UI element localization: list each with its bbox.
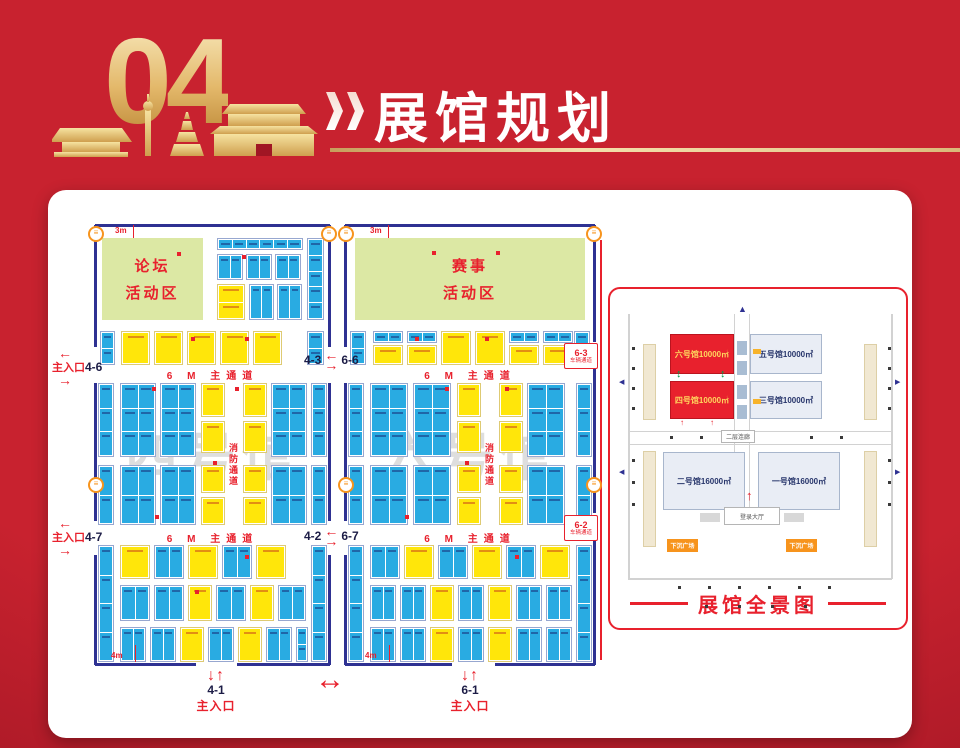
booth-cell (389, 333, 402, 341)
booth (413, 465, 451, 525)
booth-cell (100, 576, 112, 604)
arrow-left-icon: ← (58, 518, 72, 529)
booth-cell (203, 467, 223, 491)
booth-cell (219, 286, 243, 302)
red-dot (155, 515, 159, 519)
chevron-icon (326, 92, 343, 130)
junction-label: 4-3←→6-6 (304, 350, 359, 370)
booth (98, 465, 114, 525)
fire-lane-label: 消防通道 (228, 415, 240, 515)
booth-cell (415, 385, 432, 408)
booth-cell (123, 333, 148, 363)
plan-border (593, 541, 596, 665)
red-dot (213, 461, 217, 465)
aisle-label: 6 M 主通道 (95, 367, 330, 379)
gate-label: 车辆通道 (570, 358, 592, 365)
booth-cell (350, 547, 362, 575)
booth (238, 627, 262, 662)
map-dot (632, 503, 635, 506)
booth (180, 627, 204, 662)
corridor-chip (784, 513, 804, 522)
booth-cell (390, 432, 407, 455)
booth-cell (262, 286, 272, 318)
booth-cell (415, 409, 432, 432)
booth-cell (288, 240, 301, 248)
booth-cell (309, 333, 322, 348)
map-arrow-icon: ◀ (726, 393, 732, 401)
xian-skyline-icon (52, 88, 320, 160)
booth (249, 284, 274, 320)
booth-cell (273, 385, 289, 408)
booth-cell (402, 587, 413, 619)
plan-border (593, 225, 596, 342)
dim-tick (388, 225, 389, 238)
booth-cell (578, 604, 590, 632)
booth (509, 331, 539, 343)
booth (154, 545, 184, 579)
booth-cell (490, 587, 510, 619)
booth-cell (170, 587, 183, 619)
booth (499, 497, 523, 525)
page-title: 展馆规划 (374, 74, 618, 153)
door-marker: ≡ (321, 226, 337, 242)
plan-border (344, 225, 347, 347)
booth-cell (313, 547, 325, 575)
booth-cell (511, 333, 524, 341)
booth-cell (372, 385, 389, 408)
booth-cell (139, 409, 155, 432)
booth-cell (414, 587, 425, 619)
booth (458, 585, 484, 621)
booth-cell (162, 385, 178, 408)
map-dot (828, 586, 831, 589)
booth (120, 545, 150, 579)
booth (243, 421, 267, 453)
booth-cell (122, 385, 138, 408)
plan-panel: 展馆全景图 六号馆10000㎡五号馆10000㎡四号馆10000㎡三号馆1000… (48, 190, 912, 738)
booth-cell (313, 385, 325, 408)
plan-border (328, 225, 331, 347)
map-dot (700, 436, 703, 439)
map-arrow-icon: ▶ (895, 379, 900, 386)
booth-cell (415, 496, 432, 524)
booth (472, 545, 502, 579)
booth-cell (459, 423, 479, 451)
booth-cell (459, 467, 479, 491)
activity-area: 赛事活动区 (355, 238, 585, 320)
booth (201, 421, 225, 453)
vehicle-gate-badge: 6-3车辆通道 (564, 343, 598, 369)
road (628, 444, 892, 445)
booth (576, 383, 592, 457)
booth (488, 627, 512, 662)
aisle-label: 6 M 主通道 (345, 367, 595, 379)
plan-border (95, 224, 330, 227)
door-marker: ≡ (88, 226, 104, 242)
red-boundary-line (600, 240, 602, 660)
plan-border (344, 383, 347, 521)
booth (188, 545, 218, 579)
map-dot (705, 605, 708, 608)
booth-cell (390, 385, 407, 408)
booth-cell (162, 432, 178, 455)
booth-cell (293, 587, 305, 619)
booth (217, 254, 243, 280)
booth (499, 383, 523, 417)
booth (540, 545, 570, 579)
booth-cell (122, 629, 133, 660)
arrow-right-icon: → (58, 375, 72, 386)
booth-cell (122, 467, 138, 495)
booth (216, 585, 246, 621)
arrow-right-icon: → (324, 536, 338, 546)
booth-cell (290, 432, 306, 455)
panorama-caption-row: 展馆全景图 (610, 589, 906, 618)
booth-cell (248, 256, 259, 278)
booth-cell (350, 576, 362, 604)
red-dot (505, 387, 509, 391)
booth (430, 585, 454, 621)
booth-cell (162, 496, 178, 524)
road (628, 578, 892, 580)
booth-cell (529, 432, 546, 455)
booth (160, 465, 196, 525)
booth-cell (529, 409, 546, 432)
booth-cell (372, 467, 389, 495)
corridor-chip (737, 405, 747, 419)
map-dot (632, 407, 635, 410)
booth-cell (454, 547, 467, 577)
side-entrance: ←主入口4-6→ (52, 348, 102, 386)
dim-tick (133, 225, 134, 238)
booth (208, 627, 234, 662)
booth-cell (313, 496, 325, 524)
map-dot (708, 586, 711, 589)
arrow-left-icon: ← (58, 348, 72, 359)
booth-cell (313, 432, 325, 455)
hall-block: 四号馆10000㎡ (670, 381, 734, 419)
booth (275, 254, 301, 280)
booth (457, 465, 481, 493)
booth-cell (529, 385, 546, 408)
junction-right: 6-6 (341, 353, 358, 367)
chevrons-icon (326, 92, 364, 130)
door-marker: ≡ (586, 226, 602, 242)
arrows-up-down-icon: ↓↑ (207, 668, 225, 683)
booth-cell (477, 333, 503, 363)
booth-cell (182, 629, 202, 660)
booth-cell (218, 587, 231, 619)
side-entrance: ←主入口4-7→ (52, 518, 102, 556)
booth-cell (251, 286, 261, 318)
booth-cell (372, 547, 385, 577)
aisle-label: 6 M 主通道 (95, 530, 330, 542)
map-label-box: 登录大厅 (724, 507, 780, 525)
hall-block: 五号馆10000㎡ (750, 334, 822, 374)
caption-line (630, 602, 688, 605)
booth-cell (268, 629, 279, 660)
booth (217, 284, 245, 320)
double-arrow-icon: ↔ (315, 670, 345, 690)
booth (400, 627, 426, 662)
plan-border (94, 225, 97, 347)
booth-cell (525, 333, 538, 341)
booth-cell (501, 423, 521, 451)
booth-cell (530, 587, 541, 619)
door-marker: ≡ (586, 477, 602, 493)
booth-cell (460, 587, 471, 619)
parking-strip (643, 451, 656, 547)
booth-cell (390, 496, 407, 524)
booth-cell (156, 587, 169, 619)
booth-cell (529, 467, 546, 495)
booth-cell (459, 499, 479, 523)
junction-right: 6-7 (341, 529, 358, 543)
booth (120, 627, 146, 662)
booth-cell (433, 432, 450, 455)
map-dot (678, 586, 681, 589)
booth (201, 383, 225, 417)
booth-cell (100, 432, 112, 455)
booth-cell (415, 467, 432, 495)
booth-cell (232, 587, 245, 619)
panorama-caption: 展馆全景图 (698, 589, 818, 618)
booth-cell (501, 467, 521, 491)
booth (271, 465, 307, 525)
booth-cell (252, 587, 272, 619)
map-dot (840, 436, 843, 439)
corridor-chip (737, 385, 747, 399)
map-dot (888, 407, 891, 410)
booth-cell (222, 629, 233, 660)
booth-cell (402, 629, 413, 660)
corridor-chip (737, 341, 747, 355)
booth-cell (162, 467, 178, 495)
map-label-box: 二层连廊 (721, 430, 755, 443)
booth-cell (472, 629, 483, 660)
booth (509, 345, 539, 365)
booth (457, 497, 481, 525)
red-dot (465, 461, 469, 465)
booth-cell (203, 499, 223, 523)
booth-cell (578, 432, 590, 455)
booth-cell (279, 286, 289, 318)
booth (160, 383, 196, 457)
booth-cell (390, 467, 407, 495)
booth-cell (139, 496, 155, 524)
activity-area: 论坛活动区 (102, 238, 203, 320)
booth-cell (560, 587, 571, 619)
bottom-entrance: ↓↑6-1主入口 (448, 668, 492, 714)
booth-cell (224, 547, 237, 577)
booth (499, 421, 523, 453)
arrow-right-icon: → (324, 360, 338, 370)
booth-cell (545, 333, 558, 341)
booth (271, 383, 307, 457)
booth (311, 465, 327, 525)
booth-cell (474, 547, 500, 577)
booth-cell (289, 256, 300, 278)
booth (222, 545, 252, 579)
booth-cell (384, 587, 395, 619)
chevron-icon (347, 92, 364, 130)
map-dot (632, 347, 635, 350)
map-dot (798, 586, 801, 589)
arrow-icon: ↑ (470, 667, 479, 684)
plan-border (95, 663, 196, 666)
booth-cell (432, 587, 452, 619)
plan-border (345, 663, 452, 666)
map-dot (810, 436, 813, 439)
booth-cell (460, 629, 471, 660)
booth (407, 345, 437, 365)
booth (120, 465, 156, 525)
booth-cell (547, 409, 564, 432)
booth-cell (518, 629, 529, 660)
booth-cell (309, 256, 322, 271)
road (628, 431, 892, 432)
dim-label: 4m (111, 651, 123, 660)
booth-cell (136, 587, 149, 619)
aisle-label: 6 M 主通道 (345, 530, 595, 542)
booth (430, 627, 454, 662)
booth-cell (273, 432, 289, 455)
map-dot (738, 605, 741, 608)
booth (348, 383, 364, 457)
booth-cell (350, 432, 362, 455)
booth-cell (309, 303, 322, 318)
booth-cell (309, 287, 322, 302)
booth-cell (162, 409, 178, 432)
booth-cell (522, 547, 535, 577)
booth-cell (255, 333, 280, 363)
plan-border (94, 555, 97, 665)
booth-cell (578, 409, 590, 432)
booth-cell (290, 467, 306, 495)
booth-cell (578, 385, 590, 408)
hall-block: 一号馆16000㎡ (758, 452, 840, 510)
entrance-label: 主入口 (196, 697, 235, 714)
booth (404, 545, 434, 579)
booth-cell (372, 587, 383, 619)
booth-cell (372, 409, 389, 432)
booth (250, 585, 274, 621)
sunken-plaza: 下沉广场 (786, 539, 817, 552)
booth-cell (210, 629, 221, 660)
booth-cell (238, 547, 251, 577)
booth (266, 627, 292, 662)
booth-cell (245, 423, 265, 451)
booth (246, 254, 272, 280)
booth-cell (548, 629, 559, 660)
map-dot (888, 459, 891, 462)
booth-cell (409, 347, 435, 363)
booth-cell (273, 467, 289, 495)
booth-cell (350, 496, 362, 524)
booth (256, 545, 286, 579)
booth-cell (350, 409, 362, 432)
booth (370, 585, 396, 621)
booth-cell (139, 467, 155, 495)
caption-line (828, 602, 886, 605)
bottom-entrance: ↓↑4-1主入口 (194, 668, 238, 714)
booth-cell (309, 240, 322, 255)
map-dot (888, 481, 891, 484)
booth-cell (560, 629, 571, 660)
booth-cell (245, 499, 265, 523)
booth (278, 585, 306, 621)
booth (576, 545, 592, 662)
red-dot (177, 252, 181, 256)
booth-cell (280, 629, 291, 660)
booth-cell (277, 256, 288, 278)
booth (296, 627, 308, 662)
booth-cell (203, 423, 223, 451)
booth-cell (472, 587, 483, 619)
map-arrow-icon: ◀ (619, 469, 624, 476)
entrance-label: 主入口 (450, 697, 489, 714)
booth-cell (179, 432, 195, 455)
booth (150, 627, 176, 662)
booth-cell (290, 496, 306, 524)
booth-cell (548, 587, 559, 619)
arrows-up-down-icon: ↓↑ (461, 668, 479, 683)
corridor-chip (753, 399, 761, 404)
booth (243, 383, 267, 417)
booth (438, 545, 468, 579)
booth-cell (406, 547, 432, 577)
booth-cell (260, 256, 271, 278)
booth (121, 331, 150, 365)
booth (546, 585, 572, 621)
booth-cell (559, 333, 572, 341)
activity-label: 论坛 (134, 255, 170, 276)
booth-cell (547, 385, 564, 408)
red-dot (235, 387, 239, 391)
map-dot (738, 586, 741, 589)
booth-cell (100, 409, 112, 432)
floor-plan-hall6: 六号馆赛事活动区6 M 主通道6 M 主通道消防通道≡≡≡≡3m4m6-3车辆通… (345, 225, 595, 665)
junction-label: 4-2←→6-7 (304, 526, 359, 546)
red-dot (405, 515, 409, 519)
booth (243, 497, 267, 525)
booth-cell (260, 240, 273, 248)
booth-cell (459, 385, 479, 415)
booth-cell (375, 333, 388, 341)
red-dot (485, 337, 489, 341)
booth-cell (122, 587, 135, 619)
booth-cell (122, 547, 148, 577)
booth (499, 465, 523, 493)
booth (373, 331, 403, 343)
red-dot (242, 255, 246, 259)
booth-cell (518, 587, 529, 619)
plan-border (328, 383, 331, 521)
booth (201, 497, 225, 525)
map-dot (768, 586, 771, 589)
booth-cell (156, 547, 169, 577)
booth-cell (170, 547, 183, 577)
booth-cell (280, 587, 292, 619)
junction-left: 4-2 (304, 529, 321, 543)
booth (413, 383, 451, 457)
booth-cell (219, 240, 232, 248)
red-dot (245, 555, 249, 559)
booth-cell (179, 409, 195, 432)
parking-strip (864, 344, 877, 420)
red-dot (191, 337, 195, 341)
booth (457, 421, 481, 453)
